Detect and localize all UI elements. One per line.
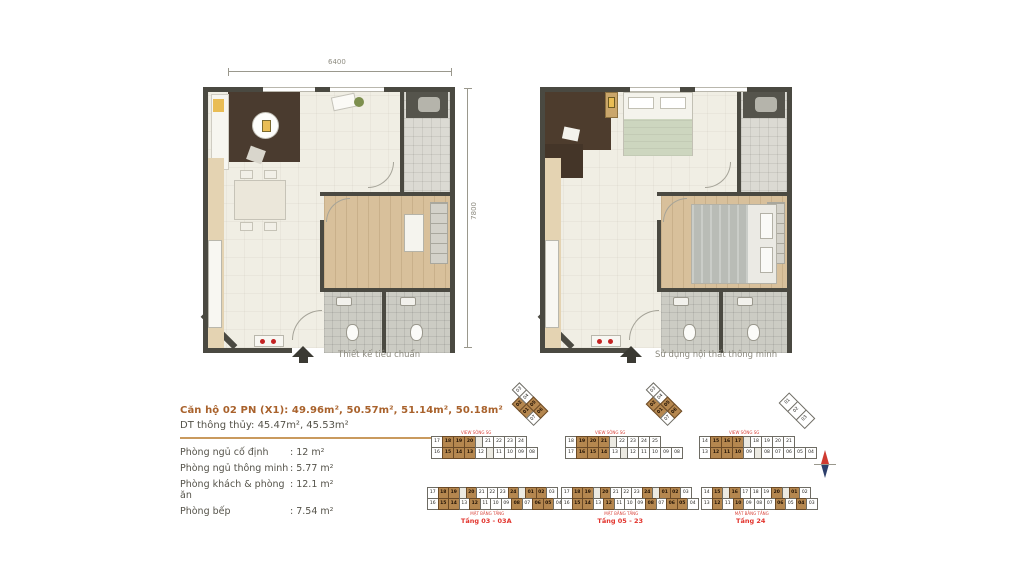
keyplan-row: 16151413121110090807060504 (428, 499, 565, 510)
compass-south (821, 464, 829, 478)
kitchen-counter (545, 240, 559, 328)
chair (240, 170, 253, 179)
entrance-arrow-stem (627, 356, 636, 363)
blanket (692, 205, 748, 283)
keyplan-diagram: 1718192021222324161514131211100908VIEW S… (432, 437, 538, 459)
keyplan-micro-label: MẶT BẰNG TẦNG (735, 511, 769, 516)
keyplan-floor-label: Tầng 24 (702, 517, 800, 525)
keyplan-diagram: 1718192021222324010203161514131211100908… (428, 488, 565, 510)
keyplan-row: 17161514131211100908 (566, 448, 683, 459)
burner (597, 339, 602, 344)
smart-bed (623, 92, 693, 156)
cooktop (591, 335, 621, 347)
room-label: Phòng khách & phòng ăn (180, 479, 290, 501)
burner (608, 339, 613, 344)
keyplan-unit-cell: 04 (687, 498, 699, 510)
master-bed (691, 204, 777, 284)
keyplan-strip: 1415161718192001021312111009080706050403 (702, 488, 818, 510)
ac-unit (418, 97, 440, 112)
tray (262, 120, 271, 132)
room-area: : 12 m² (290, 447, 324, 458)
room-area: : 5.77 m² (290, 463, 333, 474)
room-label: Phòng ngủ cố định (180, 447, 290, 458)
keyplan-strip: 1718192021222324010203161514131211100908… (562, 488, 699, 510)
keyplan-row: 161514131211100908 (432, 448, 538, 459)
dimension-height-label: 7800 (470, 202, 478, 220)
keyplan-micro-label: VIEW SÔNG SG (461, 430, 491, 435)
toilet (346, 324, 359, 341)
dining-table (234, 180, 286, 220)
keyplan-strip: 181920212223242517161514131211100908 (566, 437, 683, 459)
keyplan-micro-label: VIEW SÔNG SG (729, 430, 759, 435)
toilet (747, 324, 760, 341)
kitchen-counter (208, 240, 222, 328)
window-gap (330, 87, 384, 92)
dimension-line-horizontal (228, 71, 452, 72)
sink (400, 297, 416, 306)
cooktop (254, 335, 284, 347)
blanket (624, 119, 692, 156)
keyplan-diagram: 141516171819202113121110090807060504VIEW… (700, 437, 817, 459)
keyplan-floor-label: Tầng 03 - 03A (428, 517, 545, 525)
cabinet (605, 92, 618, 118)
keyplan-diagram: 181920212223242517161514131211100908VIEW… (566, 437, 683, 459)
pillow (660, 97, 686, 109)
floor-plan-smart (540, 87, 792, 353)
burner (260, 339, 265, 344)
keyplan-diagram: 1415161718192001021312111009080706050403… (702, 488, 818, 510)
bathroom-wall (382, 292, 386, 353)
keyplan-micro-label: MẶT BẰNG TẦNG (604, 511, 638, 516)
burner (271, 339, 276, 344)
plant (354, 97, 364, 107)
sink (336, 297, 352, 306)
compass-north (821, 450, 829, 464)
keyplan-wing: 03020401050706 (506, 383, 548, 425)
coffee-table (252, 112, 279, 139)
keyplan-unit-cell: 04 (805, 447, 817, 459)
keyplan-row: 16151413121110090807060504 (562, 499, 699, 510)
door-arc (629, 310, 659, 340)
bathroom-wall (719, 292, 723, 353)
keyplan-unit-cell: 08 (526, 447, 538, 459)
keyplan-row: 13121110090807060504 (700, 448, 817, 459)
room-label: Phòng bếp (180, 506, 290, 517)
chair (264, 222, 277, 231)
keyplan-strip: 1718192021222324010203161514131211100908… (428, 488, 565, 510)
desk (404, 214, 424, 252)
keyplan-diagram: 1718192021222324010203161514131211100908… (562, 488, 699, 510)
plan-caption-standard: Thiết kế tiêu chuẩn (338, 350, 420, 360)
compass-line (814, 464, 836, 465)
pillow (760, 213, 773, 239)
keyplan-unit-cell: 08 (671, 447, 683, 459)
apartment-title: Căn hộ 02 PN (X1): 49.96m², 50.57m², 51.… (180, 405, 510, 416)
entrance-arrow-stem (299, 356, 308, 363)
sink (737, 297, 753, 306)
keyplan-micro-label: VIEW SÔNG SG (595, 430, 625, 435)
keyplan-wing: 03020401050706 (640, 383, 682, 425)
keyplan-floor-label: Tầng 05 - 23 (562, 517, 679, 525)
room-area: : 12.1 m² (290, 479, 333, 501)
sofa-bed (545, 92, 611, 150)
ac-unit (755, 97, 777, 112)
wardrobe (430, 202, 448, 264)
keyplan-wing: 010203 (780, 393, 815, 428)
keyplan-strip: 1718192021222324161514131211100908 (432, 437, 538, 459)
chair (240, 222, 253, 231)
keyplan-micro-label: MẶT BẰNG TẦNG (470, 511, 504, 516)
keyplan-unit-cell: 03 (806, 498, 818, 510)
brochure-page: 6400 7800 (0, 0, 1024, 584)
pillow (760, 247, 773, 273)
cabinet-box (608, 97, 615, 108)
floor-plan-standard (203, 87, 455, 353)
chair (264, 170, 277, 179)
room-area: : 7.54 m² (290, 506, 333, 517)
keyplan-row: 1312111009080706050403 (702, 499, 818, 510)
dimension-line-vertical (467, 88, 468, 348)
info-row: Phòng ngủ thông minh: 5.77 m² (180, 463, 510, 474)
door-arc (292, 310, 322, 340)
compass-icon (818, 450, 832, 480)
room-label: Phòng ngủ thông minh (180, 463, 290, 474)
pillow (628, 97, 654, 109)
door-arc (705, 162, 731, 188)
toilet (683, 324, 696, 341)
plan-caption-smart: Sử dụng nội thất thông minh (655, 350, 777, 360)
sink (673, 297, 689, 306)
toilet (410, 324, 423, 341)
door-arc (368, 162, 394, 188)
dimension-width-label: 6400 (328, 58, 346, 66)
pillow (213, 99, 224, 112)
keyplan-strip: 141516171819202113121110090807060504 (700, 437, 817, 459)
